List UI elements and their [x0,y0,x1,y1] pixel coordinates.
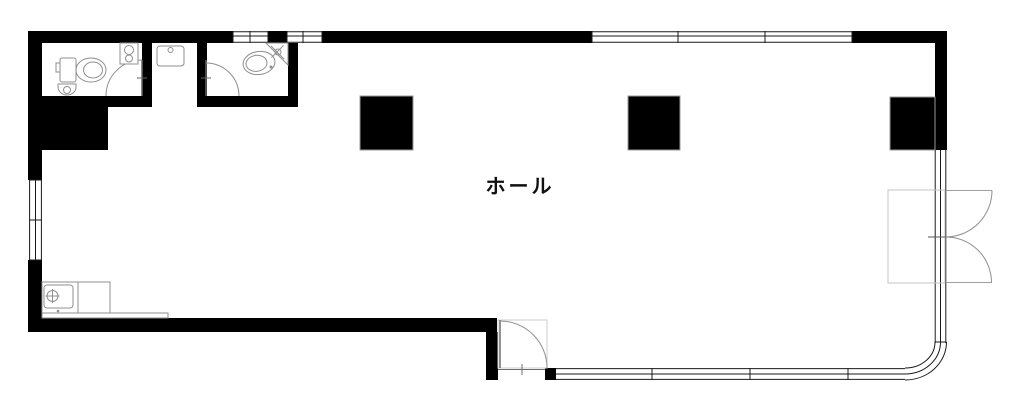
wall-top-b [268,31,287,43]
door-swing-arc [946,191,993,238]
wall-bottom-left [28,318,497,332]
window [287,31,322,43]
vanity-basin-icon [157,46,184,66]
toilet-door-right [201,60,239,96]
hall-label: ホール [420,170,620,199]
wall-top-d [852,31,947,43]
toilet-icon [242,49,277,76]
door-frame-outline [498,320,547,368]
window [233,31,268,43]
wall-basin-icon [58,84,76,95]
window [556,368,905,380]
wall-right-upper [935,31,947,150]
door-swing-arc [106,60,142,96]
column [890,97,935,150]
column [360,96,413,150]
curved-window-corner [905,342,947,380]
kitchen-sink-icon [42,282,168,318]
walls-layer [28,31,947,380]
toilet-icon [56,58,106,82]
window [592,31,852,43]
wall-step [486,332,498,380]
hand-wash-unit-icon [120,43,138,64]
floor-plan: ホール [0,0,1024,412]
wall-toilet-divider-left [142,43,152,107]
wall-top-a [28,31,233,43]
door-swing-arc [500,321,547,368]
window [29,180,42,260]
door-swing-arc [946,237,992,283]
wall-post [545,368,556,380]
entry-swing-door [498,320,547,375]
wall-toilet-bottom-left [42,96,142,107]
column [628,96,680,150]
wall-toilet-bottom-right [197,96,298,107]
door-swing-arc [206,63,239,96]
toilet-door-left [106,60,147,96]
wall-top-c [322,31,592,43]
fixtures-layer [42,43,288,318]
floor-plan-canvas [0,0,1024,412]
